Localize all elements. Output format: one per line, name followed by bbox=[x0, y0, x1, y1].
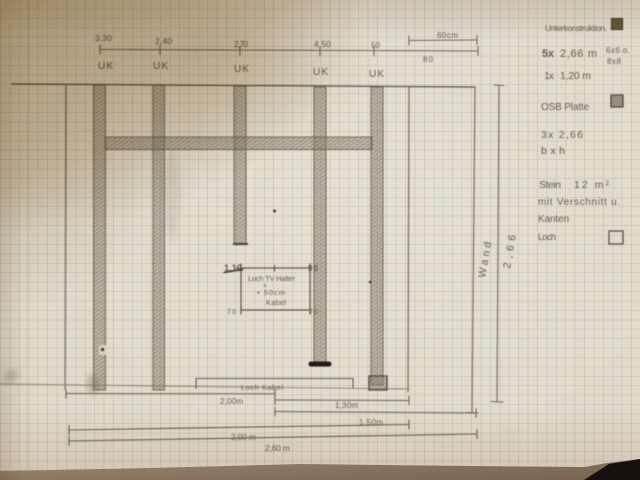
svg-text:2,60 m: 2,60 m bbox=[265, 443, 290, 453]
svg-text:2,40: 2,40 bbox=[155, 36, 172, 46]
svg-text:UK: UK bbox=[153, 61, 168, 72]
svg-text:3,30: 3,30 bbox=[95, 33, 112, 43]
svg-text:Kanten: Kanten bbox=[538, 214, 569, 225]
svg-text:60cm: 60cm bbox=[437, 31, 458, 40]
svg-text:Loch: Loch bbox=[538, 232, 556, 243]
svg-text:• 50cm: • 50cm bbox=[257, 288, 285, 297]
svg-text:1,20 m: 1,20 m bbox=[560, 70, 591, 82]
svg-text:2,70: 2,70 bbox=[234, 39, 248, 49]
svg-text:UK: UK bbox=[234, 64, 249, 75]
svg-text:90: 90 bbox=[308, 264, 319, 273]
svg-text:Kabel: Kabel bbox=[266, 298, 286, 307]
svg-text:80: 80 bbox=[423, 55, 434, 64]
svg-text:mit Verschnitt u.: mit Verschnitt u. bbox=[538, 197, 620, 208]
svg-text:8x8: 8x8 bbox=[607, 57, 622, 66]
svg-text:b x h: b x h bbox=[541, 145, 565, 157]
svg-text:5x: 5x bbox=[542, 48, 555, 60]
svg-text:Loch TV Halter: Loch TV Halter bbox=[248, 274, 296, 283]
svg-text:Unterkonstruktion.: Unterkonstruktion. bbox=[545, 23, 607, 33]
svg-text:1,30m: 1,30m bbox=[335, 401, 358, 410]
svg-text:50: 50 bbox=[371, 41, 381, 50]
svg-text:1x: 1x bbox=[544, 70, 555, 82]
svg-text:Stein: Stein bbox=[539, 179, 561, 191]
svg-text:12 m²: 12 m² bbox=[574, 179, 610, 191]
svg-text:UK: UK bbox=[98, 61, 113, 72]
svg-text:Loch Kabel: Loch Kabel bbox=[241, 383, 283, 392]
svg-text:3x 2,66: 3x 2,66 bbox=[541, 129, 583, 141]
svg-text:2,66: 2,66 bbox=[501, 234, 519, 270]
svg-text:UK: UK bbox=[313, 67, 328, 78]
svg-text:OSB Platte: OSB Platte bbox=[541, 102, 589, 113]
svg-text:UK: UK bbox=[369, 69, 384, 80]
svg-text:2,00m: 2,00m bbox=[220, 397, 243, 406]
svg-text:Wand: Wand bbox=[476, 241, 494, 279]
svg-text:70: 70 bbox=[309, 309, 318, 316]
svg-text:2,66 m: 2,66 m bbox=[560, 48, 597, 60]
svg-text:2,00 m: 2,00 m bbox=[231, 432, 256, 442]
svg-text:4,50: 4,50 bbox=[314, 39, 331, 49]
svg-text:6x6 o.: 6x6 o. bbox=[606, 46, 630, 55]
svg-text:70: 70 bbox=[227, 309, 236, 316]
